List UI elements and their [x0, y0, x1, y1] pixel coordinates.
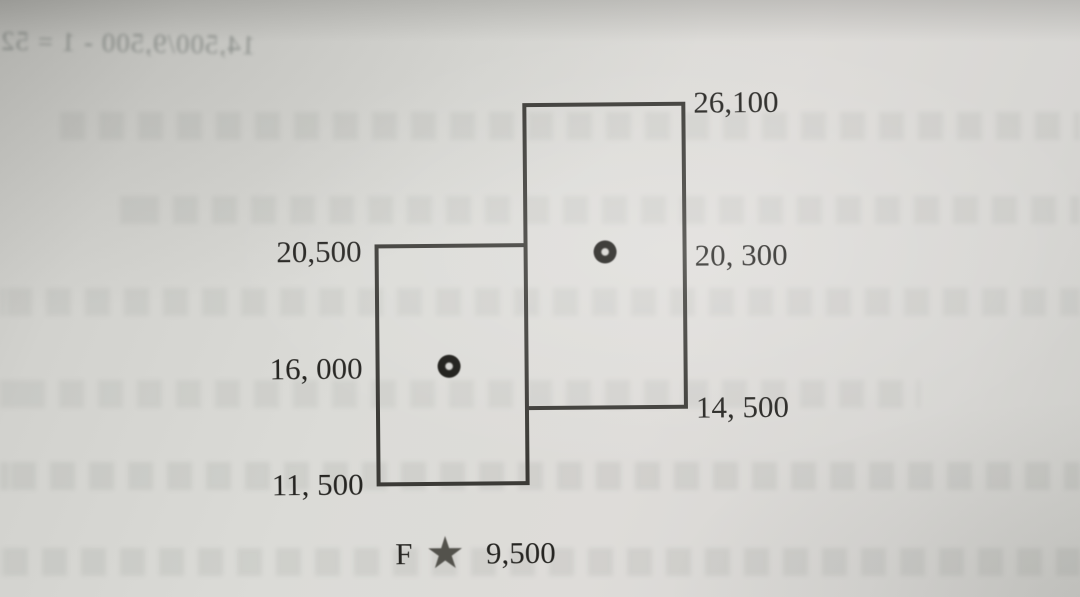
left-box-midpoint-label: 16, 000: [140, 353, 362, 387]
left-box-max-label: 20,500: [139, 236, 361, 270]
right-box-max-label: 26,100: [693, 86, 779, 119]
left-midpoint-dot: [437, 355, 460, 378]
left-box-min-label: 11, 500: [141, 469, 363, 503]
star-icon: ★: [425, 537, 465, 571]
caption-prefix: F: [395, 537, 413, 571]
right-box-min-label: 14, 500: [696, 391, 789, 424]
salary-range-diagram: 20,500 16, 000 11, 500 26,100 20, 300 14…: [0, 0, 1080, 597]
right-midpoint-dot: [593, 240, 616, 263]
photographed-textbook-page: 14,500/9,500 - 1 = 52 20,500 16, 000 11,…: [0, 0, 1080, 597]
right-box-midpoint-label: 20, 300: [694, 239, 787, 272]
figure-caption: F ★ 9,500: [395, 536, 556, 571]
caption-value: 9,500: [486, 536, 556, 571]
